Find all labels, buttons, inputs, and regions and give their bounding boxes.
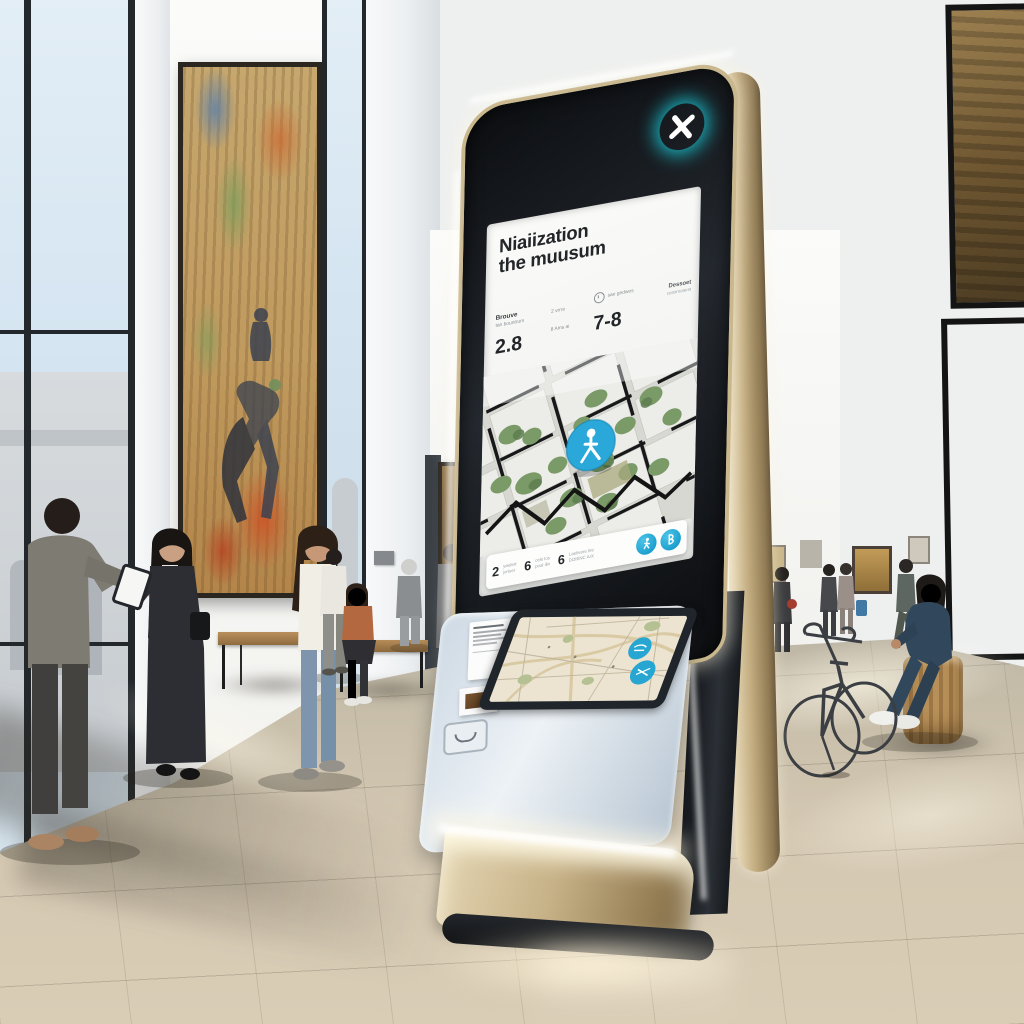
info-b-button[interactable] — [660, 527, 681, 552]
bar-item3-num: 6 — [558, 551, 565, 567]
kiosk-pillar: Niaiization the muusum Brouve tan bountr… — [487, 225, 488, 226]
outside-building-cornice — [0, 430, 130, 446]
ticket-slot[interactable] — [443, 719, 488, 756]
bench-leg — [222, 645, 225, 689]
bench-leg — [312, 645, 315, 685]
kiosk-console — [418, 605, 695, 853]
outside-building-arch — [44, 575, 66, 675]
walking-person-icon — [639, 535, 653, 551]
map-button-2[interactable] — [626, 660, 659, 684]
stat3-value: 7-8 — [593, 303, 652, 337]
bench-leg — [340, 652, 343, 692]
kiosk-main-screen[interactable]: Niaiization the muusum Brouve tan bountr… — [479, 186, 701, 597]
slot-opening — [454, 731, 476, 743]
bench-shadow — [210, 672, 340, 698]
large-abstract-painting — [178, 62, 322, 598]
bar-item1-text: yøelert jorluer — [503, 562, 517, 576]
stat2-line1: 2 vrrre — [551, 302, 592, 316]
wall-plaque — [374, 551, 394, 565]
stat3-label: sae gedwes — [608, 288, 634, 299]
window-transom — [0, 330, 136, 334]
rider-figure — [183, 67, 307, 583]
x-logo-icon — [656, 103, 707, 151]
small-frame — [800, 540, 822, 568]
tall-painting-right — [945, 3, 1024, 309]
bar-item2-num: 6 — [524, 557, 531, 573]
window-mullion — [322, 0, 327, 700]
outside-arch-2 — [332, 478, 358, 628]
street-map[interactable] — [489, 616, 688, 702]
trash-bin — [856, 600, 867, 616]
bar-item3-text: Laetivere lire DOIENC ArX — [569, 541, 633, 564]
bench-leg — [420, 652, 423, 688]
stat-col2: 2 vrrre 8 Ams ai — [551, 302, 592, 334]
stat2-line2: 8 Ams ai — [551, 320, 592, 334]
kiosk-touchscreen[interactable] — [477, 608, 700, 710]
small-frame — [908, 536, 930, 564]
small-frame — [852, 546, 892, 594]
stat-col3: sae gedwes 7-8 — [593, 283, 652, 337]
letter-b-icon — [664, 531, 678, 547]
bench-shadow — [330, 678, 450, 702]
museum-lobby-scene: Niaiization the muusum Brouve tan bountr… — [0, 0, 1024, 1024]
bench — [336, 640, 428, 652]
tall-painting-right — [941, 317, 1024, 661]
bar-item1-num: 2 — [492, 563, 499, 579]
wooden-stool — [903, 656, 963, 744]
floor-reflection-streak — [540, 950, 730, 1020]
window-transom — [0, 642, 136, 646]
screen-title: Niaiization the muusum — [498, 217, 606, 278]
outside-building-arch — [78, 560, 102, 675]
walking-mode-button[interactable] — [636, 531, 657, 556]
bench-leg — [240, 645, 242, 685]
bench — [218, 632, 320, 645]
clock-icon — [594, 291, 605, 304]
stat-col4: Dessoet costrnroterst — [667, 279, 692, 296]
bar-item2-text: cels los poal ilin — [535, 556, 550, 570]
x-logo-badge — [656, 103, 707, 151]
stat1-value: 2.8 — [495, 328, 546, 360]
stat-col1: Brouve tan bountrum 2.8 — [495, 306, 547, 360]
